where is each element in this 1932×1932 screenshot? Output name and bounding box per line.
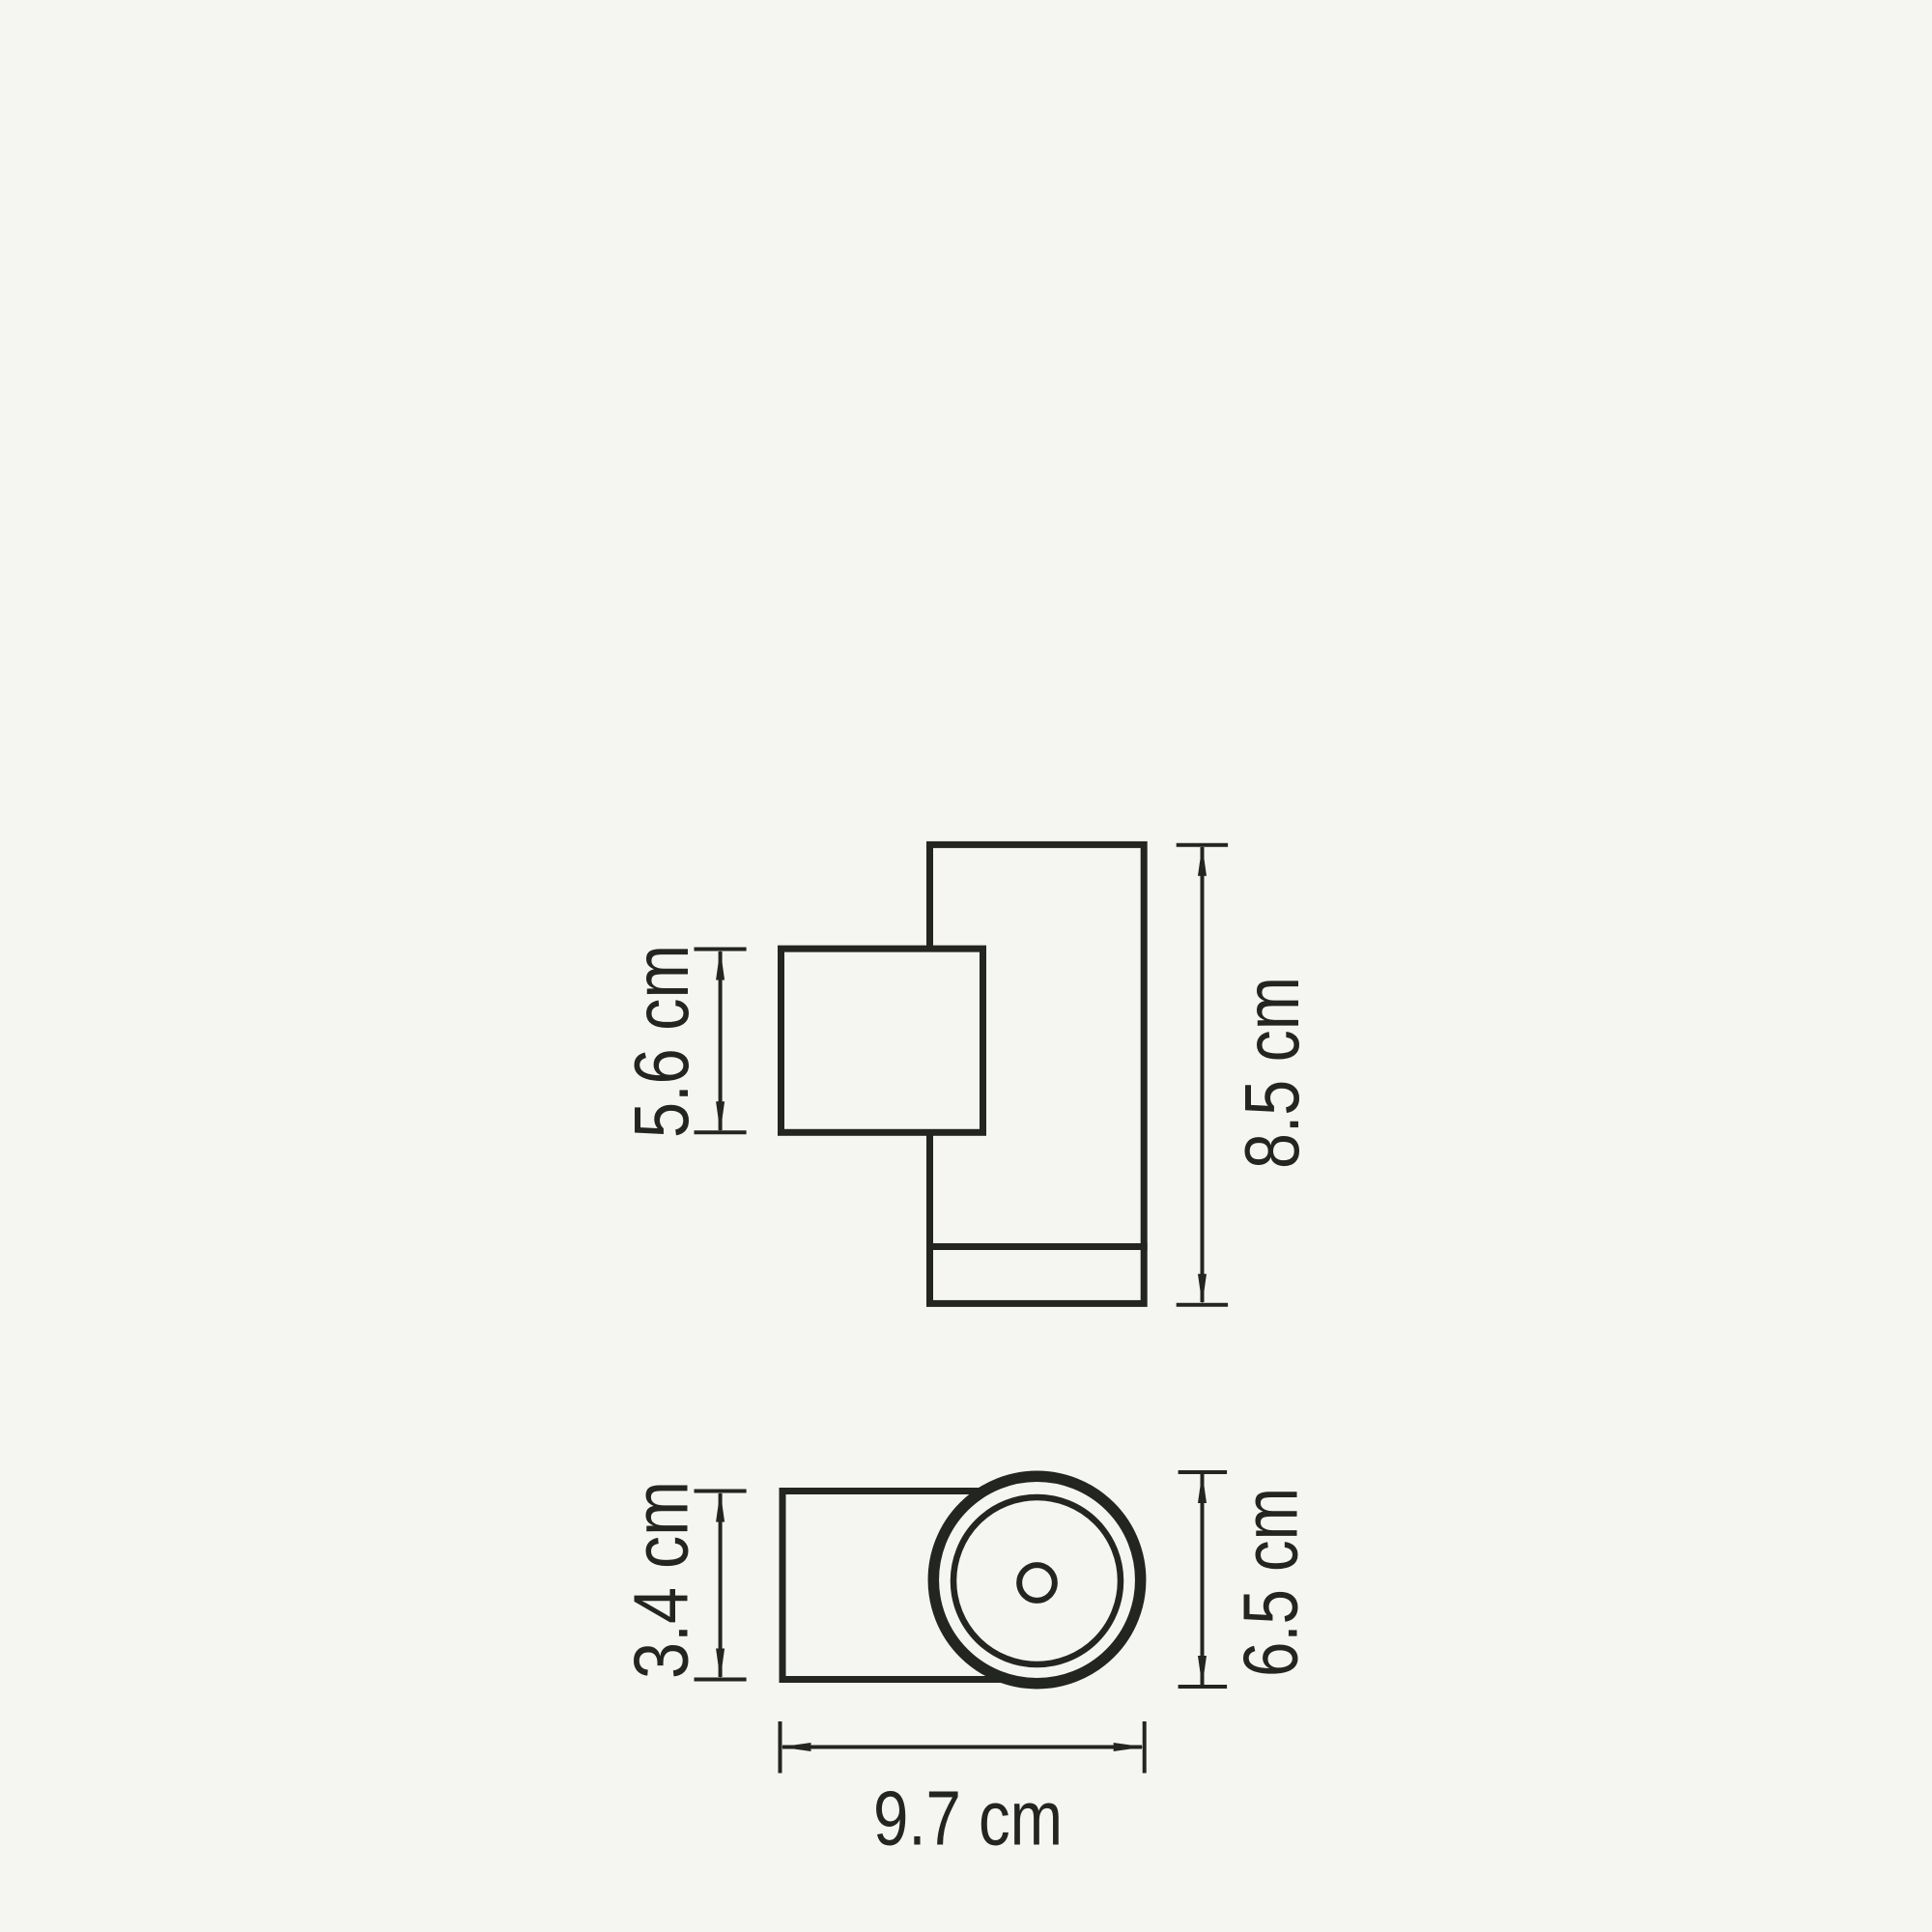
svg-text:6.5 cm: 6.5 cm <box>1228 1488 1314 1677</box>
svg-text:8.5 cm: 8.5 cm <box>1229 977 1315 1169</box>
svg-text:3.4 cm: 3.4 cm <box>618 1481 704 1679</box>
svg-text:5.6 cm: 5.6 cm <box>618 945 704 1138</box>
svg-text:9.7 cm: 9.7 cm <box>873 1776 1063 1861</box>
